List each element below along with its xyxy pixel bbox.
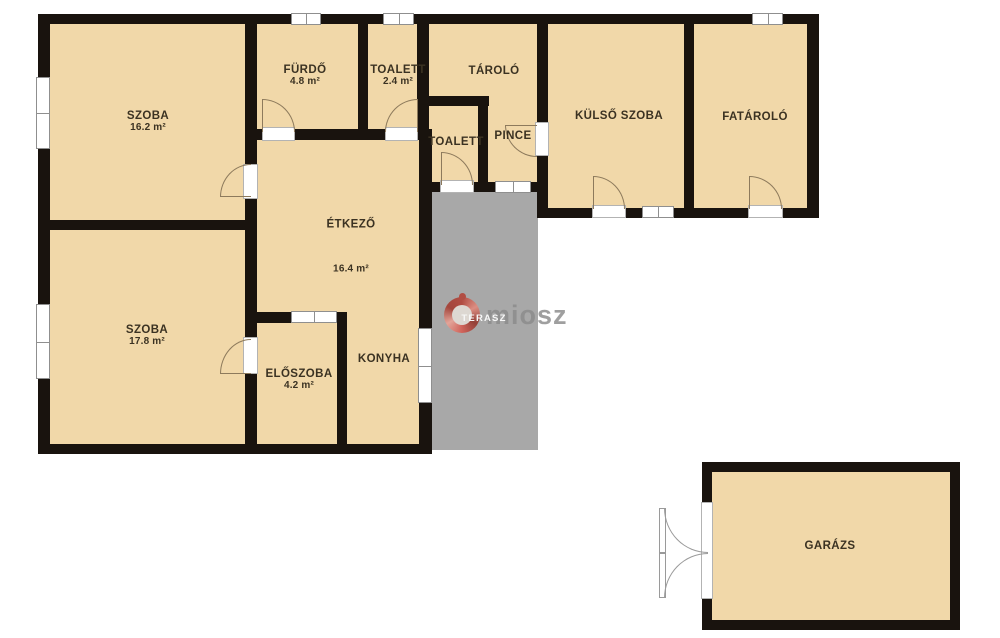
wall-bottom-left: [38, 444, 432, 454]
window: [291, 13, 321, 25]
room-label-szoba-1: SZOBA 16.2 m²: [127, 110, 169, 134]
room-label-garazs: GARÁZS: [805, 540, 856, 552]
room-label-toalett-1: TOALETT 2.4 m²: [370, 64, 426, 88]
window: [418, 328, 432, 403]
room-label-fatarolo: FATÁROLÓ: [722, 111, 788, 123]
room-label-furdo: FÜRDŐ 4.8 m²: [284, 64, 327, 88]
wall-garage-bottom: [702, 620, 960, 630]
wall-right-outer: [807, 14, 819, 218]
window: [291, 311, 337, 323]
window: [495, 181, 531, 193]
window: [383, 13, 414, 25]
wall-garage-top: [702, 462, 960, 472]
room-label-pince: PINCE: [494, 130, 531, 142]
window: [642, 206, 674, 218]
wall-eloszoba-konyha: [337, 312, 347, 454]
wall-kulso-fatarolo: [684, 14, 694, 218]
room-label-kulso-szoba: KÜLSŐ SZOBA: [575, 110, 663, 122]
window: [752, 13, 783, 25]
room-label-etkezo: ÉTKEZŐ 16.4 m²: [326, 219, 375, 276]
garage-door-arc: [664, 508, 708, 553]
wall-szoba-divider: [38, 220, 257, 230]
wall-konyha-right: [419, 129, 432, 454]
floor-plan: miosz SZOBA 16.2 m² FÜRDŐ 4.8 m² TOALETT…: [0, 0, 1000, 638]
room-label-szoba-2: SZOBA 17.8 m²: [126, 324, 168, 348]
window: [36, 77, 50, 149]
wall-pince-kulso: [537, 14, 548, 218]
door-threshold: [535, 122, 549, 156]
room-label-konyha: KONYHA: [358, 353, 410, 365]
wall-garage-right: [950, 462, 960, 630]
wall-furdo-toalett: [358, 14, 368, 135]
room-label-tarolo: TÁROLÓ: [469, 65, 520, 77]
room-label-eloszoba: ELŐSZOBA 4.2 m²: [265, 368, 332, 392]
room-label-terasz: TERASZ: [461, 314, 506, 324]
room-label-toalett-2: TOALETT: [428, 136, 484, 148]
wall-mid-vertical: [245, 14, 257, 454]
window: [36, 304, 50, 379]
garage-door-arc: [664, 553, 708, 598]
